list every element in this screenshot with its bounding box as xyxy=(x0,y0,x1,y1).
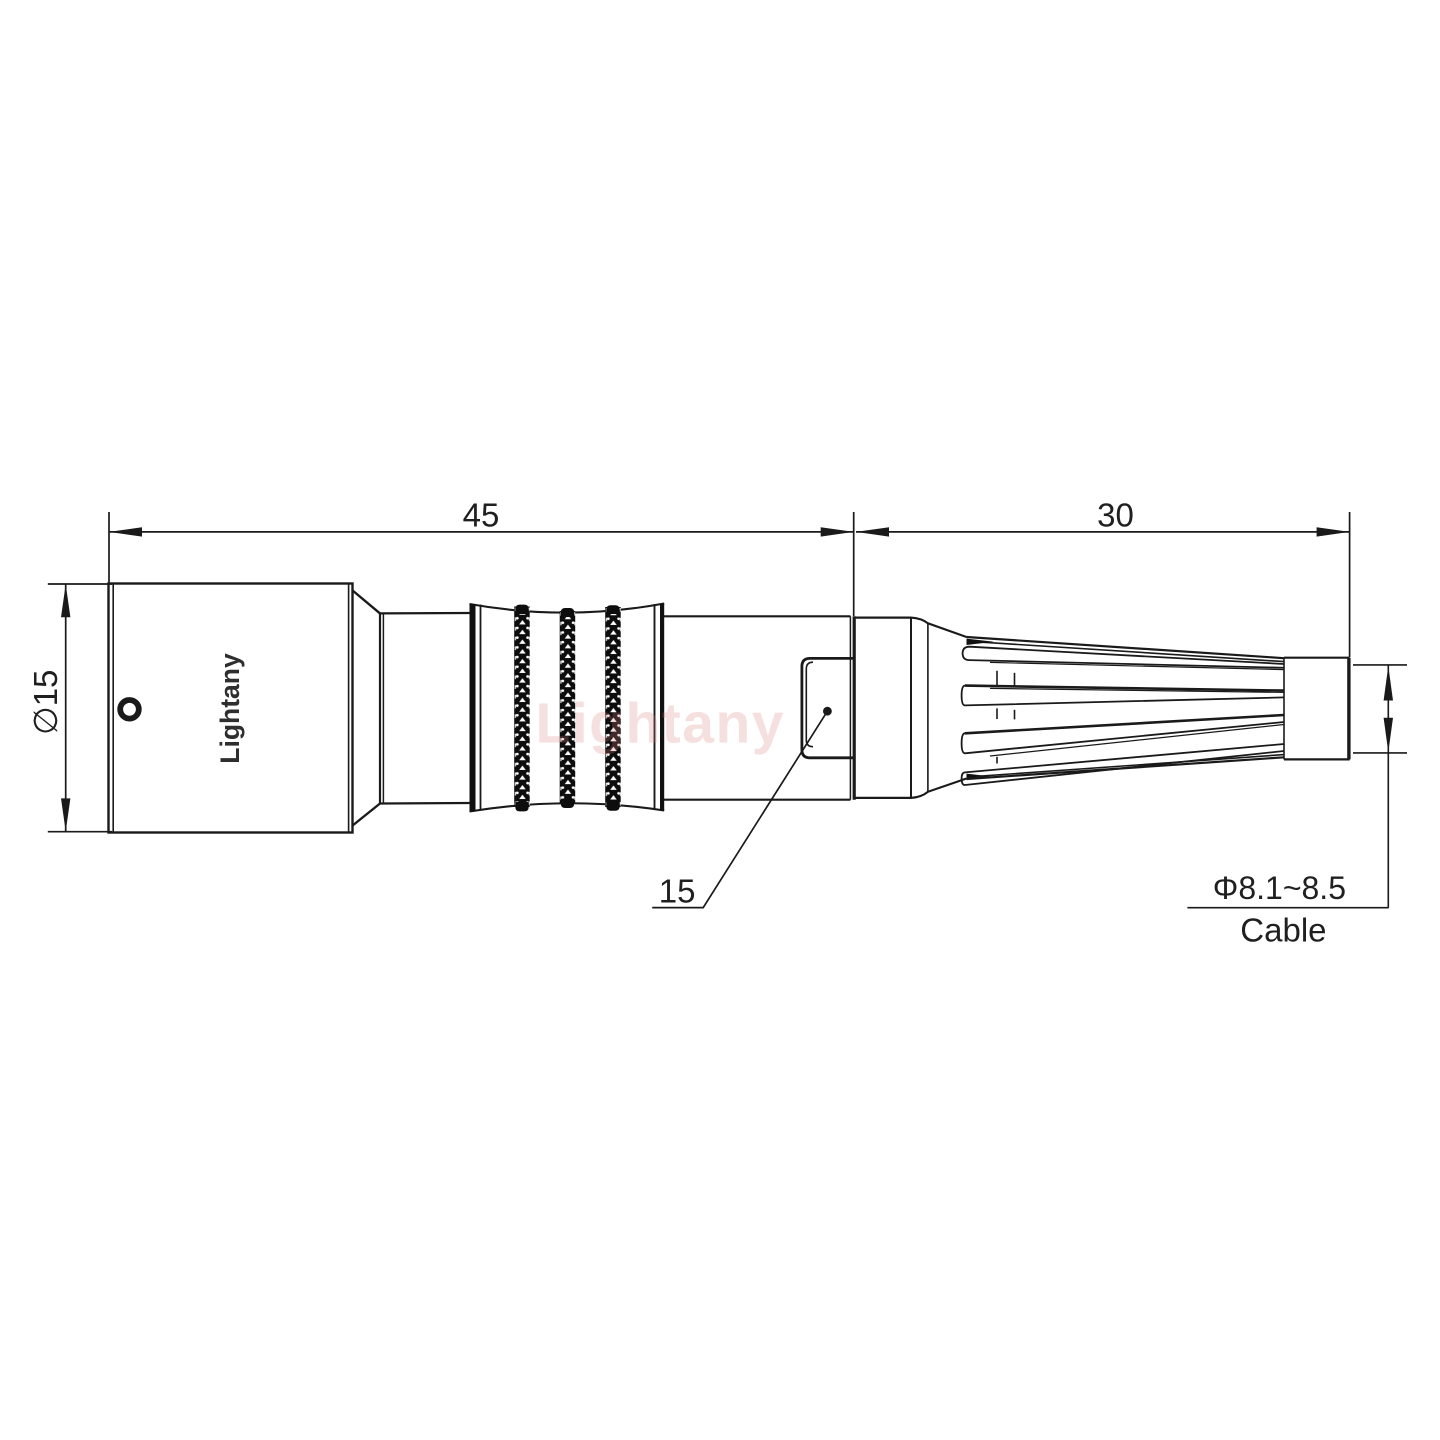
svg-text:∅15: ∅15 xyxy=(27,670,64,735)
svg-text:Lightany: Lightany xyxy=(536,692,786,756)
svg-text:30: 30 xyxy=(1097,497,1134,534)
svg-text:Cable: Cable xyxy=(1240,912,1326,949)
svg-text:15: 15 xyxy=(659,873,696,910)
svg-text:Φ8.1~8.5: Φ8.1~8.5 xyxy=(1213,870,1346,906)
svg-text:Lightany: Lightany xyxy=(215,653,245,764)
svg-text:45: 45 xyxy=(463,497,500,534)
